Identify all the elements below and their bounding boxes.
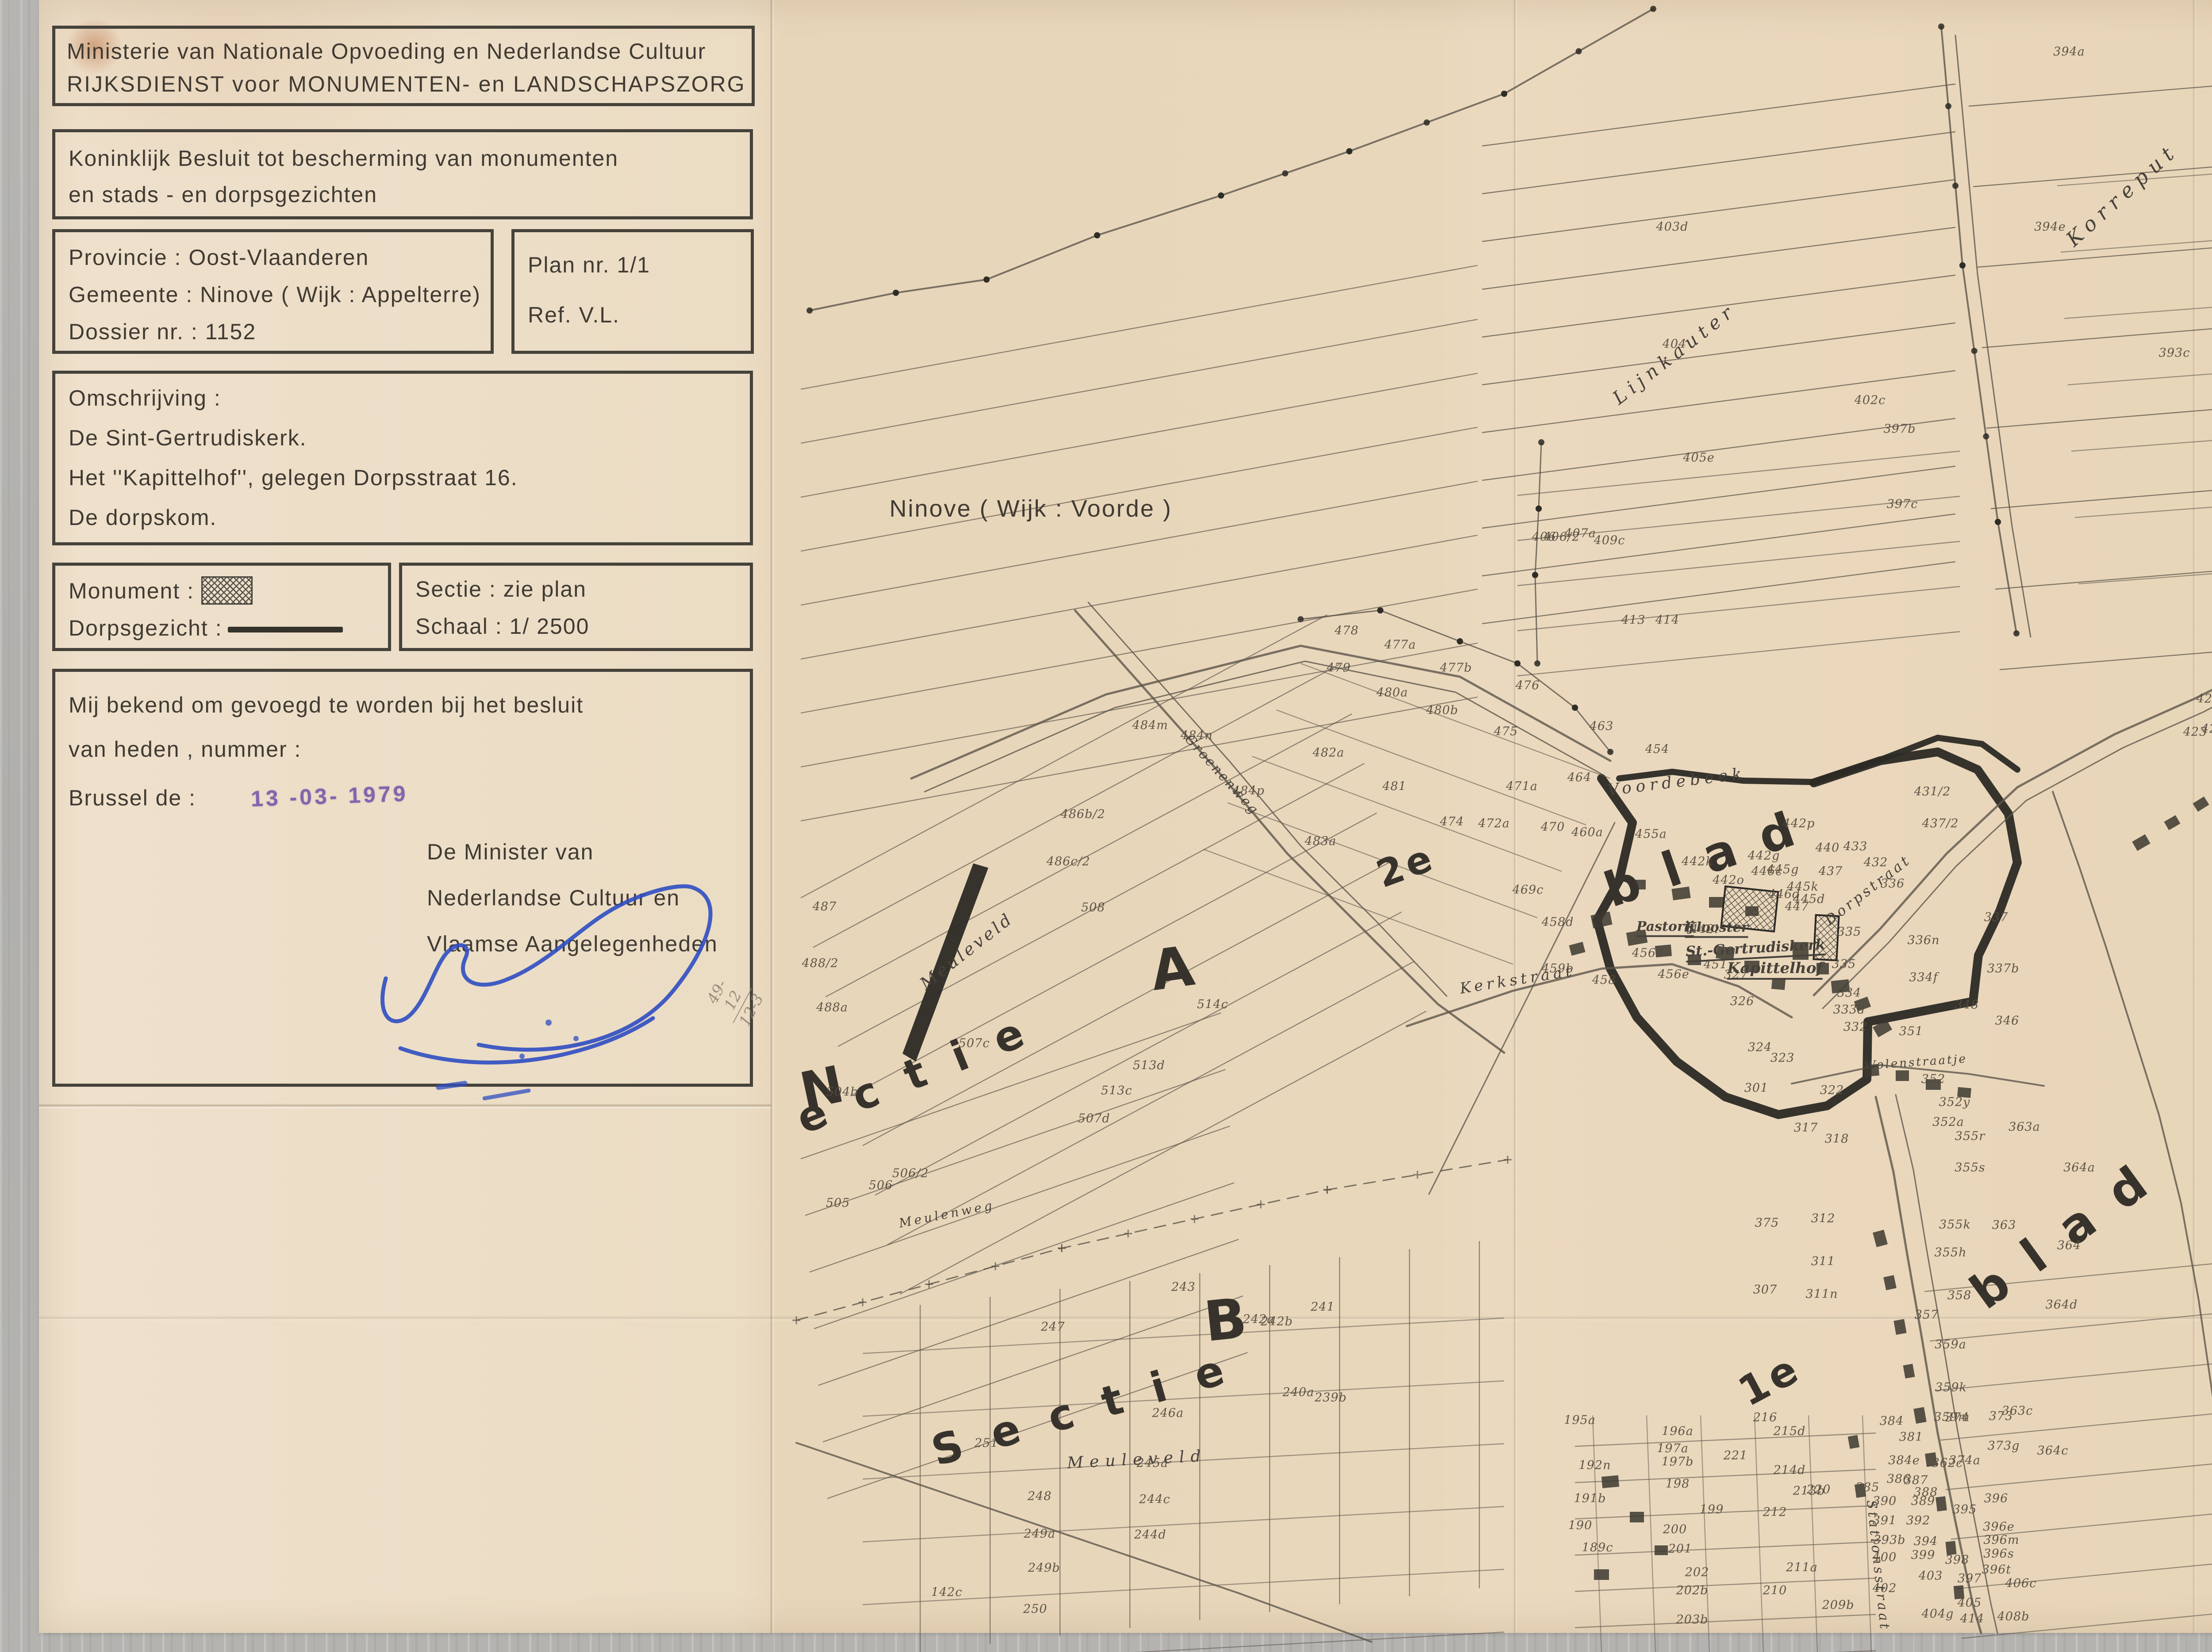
boundary-dot (1514, 660, 1521, 667)
parcel-number: 395 (1953, 1503, 1977, 1517)
parcel-number: 191b (1574, 1492, 1606, 1506)
parcel-number: 484p (1233, 784, 1265, 798)
parcel-boundary-line (1276, 710, 1586, 825)
boundary-dot (1094, 232, 1100, 238)
parcel-number: 476 (1516, 679, 1540, 693)
parcel-number: 324 (1748, 1041, 1772, 1054)
parcel-boundary-line (1575, 1542, 1876, 1555)
parcel-number: 397b (1884, 422, 1916, 436)
path-cross-mark (792, 1316, 800, 1324)
parcel-boundary-line (1982, 321, 2212, 348)
parcel-number: 414 (1655, 613, 1680, 627)
parcel-number: 355h (1935, 1246, 1967, 1260)
parcel-number: 348 (1955, 998, 1979, 1012)
parcel-number: 337 (1984, 911, 2008, 924)
parcel-number: 409c (1594, 534, 1625, 548)
parcel-number: 214d (1774, 1464, 1806, 1477)
parcel-boundary-line (1517, 541, 1960, 586)
parcel-number: 397 (1958, 1572, 1982, 1586)
boundary-dot (983, 276, 990, 283)
parcel-number: 364a (2063, 1161, 2095, 1175)
parcel-number: 442i (1690, 923, 1719, 936)
parcel-number: 472a (1478, 817, 1510, 831)
parcel-boundary-line (1482, 180, 1955, 241)
building-footprint (1771, 978, 1786, 990)
parcel-number: 249a (1024, 1527, 1056, 1541)
parcel-number: 486b/2 (1060, 808, 1105, 821)
parcel-number: 197a (1657, 1442, 1689, 1456)
parcel-number: 396s (1983, 1547, 2014, 1561)
parcel-number: 480b (1426, 704, 1459, 717)
parcel-number: 506 (869, 1179, 893, 1192)
parcel-number: 244d (1134, 1528, 1167, 1542)
parcel-number: 422 (2197, 692, 2212, 706)
parcel-number: 318 (1825, 1132, 1849, 1146)
building-footprint (1913, 1407, 1927, 1424)
parcel-number: 364 (2057, 1239, 2081, 1253)
parcel-number: 381 (1899, 1430, 1924, 1444)
parcel-number: 239b (1315, 1391, 1347, 1405)
parcel-number: 407a (1564, 527, 1596, 540)
parcel-number: 322 (1820, 1084, 1844, 1097)
boundary-dot (893, 290, 899, 296)
parcel-number: 240a (1283, 1386, 1314, 1399)
parcel-number: 403d (1656, 220, 1689, 234)
parcel-number: 364d (2046, 1298, 2078, 1312)
parcel-number: 247 (1041, 1320, 1065, 1334)
parcel-number: 399 (1911, 1549, 1935, 1562)
parcel-number: 195a (1564, 1414, 1596, 1427)
parcel-boundary-line (2071, 433, 2212, 451)
path-cross-mark (859, 1298, 867, 1306)
parcel-boundary-line (1517, 451, 1960, 495)
building-footprint (1594, 1569, 1609, 1580)
map-road-line (796, 1443, 1371, 1642)
boundary-dot (1995, 519, 2001, 525)
parcel-number: 359a (1935, 1338, 1966, 1352)
parcel-number: 458d (1542, 916, 1574, 929)
parcel-number: 311n (1806, 1288, 1838, 1301)
parcel-boundary-line (1203, 849, 1513, 964)
parcel-boundary-line (2068, 367, 2212, 385)
parcel-number: 216 (1753, 1411, 1778, 1425)
boundary-dot (1282, 170, 1288, 176)
boundary-dot (1576, 48, 1582, 54)
parcel-number: 403 (1919, 1569, 1943, 1583)
parcel-number: 203b (1676, 1613, 1709, 1627)
parcel-number: 442g (1748, 849, 1780, 863)
parcel-number: 393c (2159, 346, 2190, 360)
parcel-number: 221 (1724, 1449, 1748, 1463)
parcel-boundary-line (1935, 1355, 2212, 1391)
boundary-dot (1945, 103, 1951, 109)
parcel-number: 402 (1873, 1582, 1897, 1595)
parcel-number: 394e (2034, 220, 2066, 234)
parcel-number: 384 (1880, 1414, 1904, 1428)
parcel-boundary-line (1482, 132, 1955, 194)
boundary-dot (1424, 119, 1430, 126)
parcel-number: 358 (1947, 1289, 1972, 1303)
building-footprint (1903, 1364, 1915, 1378)
boundary-dot (1532, 572, 1538, 578)
parcel-number: 196a (1662, 1425, 1694, 1438)
parcel-number: 210 (1763, 1584, 1787, 1598)
parcel-boundary-line (801, 265, 1478, 389)
parcel-number: 359k (1935, 1381, 1967, 1395)
building-footprint (1709, 897, 1724, 908)
parcel-boundary-line (801, 427, 1478, 551)
parcel-number: 396m (1983, 1533, 2019, 1547)
parcel-number: 408b (1997, 1610, 2030, 1624)
parcel-boundary-line (2075, 500, 2212, 517)
parcel-number: 384e (1888, 1454, 1920, 1468)
parcel-boundary-line (887, 962, 1414, 1245)
parcel-number: 199 (1700, 1503, 1724, 1517)
parcel-number: 212 (1763, 1506, 1787, 1519)
parcel-number: 507d (1078, 1112, 1110, 1126)
parcel-number: 413 (1621, 613, 1646, 627)
parcel-boundary-line (1647, 1415, 1655, 1652)
boundary-dot (1952, 183, 1959, 189)
parcel-number: 404 (1663, 337, 1687, 351)
parcel-number: 487 (813, 900, 837, 914)
parcel-number: 335 (1832, 958, 1856, 971)
parcel-number: 478 (1335, 624, 1359, 638)
parcel-number: 400 (1873, 1551, 1897, 1564)
parcel-number: 241 (1311, 1300, 1335, 1314)
parcel-boundary-line (801, 535, 1478, 659)
parcel-number: 484n (1181, 729, 1213, 743)
parcel-number: 406c (2005, 1577, 2037, 1591)
parcel-boundary-line (1575, 1469, 1876, 1483)
parcel-number: 470 (1541, 820, 1565, 834)
parcel-boundary-line (1575, 1506, 1876, 1519)
boundary-dot (1536, 506, 1542, 512)
parcel-number: 209b (1822, 1598, 1855, 1612)
region-label: Ninove ( Wijk : Voorde ) (889, 495, 1172, 522)
parcel-number: 374 (1945, 1411, 1970, 1425)
parcel-number: 337b (1987, 962, 2020, 976)
path-cross-mark (1058, 1244, 1066, 1252)
parcel-number: 363 (1992, 1219, 2016, 1232)
parcel-number: 432 (1864, 856, 1888, 870)
parcel-boundary-line (1940, 1405, 2212, 1440)
parcel-boundary-line (1991, 482, 2212, 509)
building-footprint (1896, 1070, 1909, 1081)
parcel-number: 336 (1881, 877, 1905, 891)
parcel-boundary-line (863, 862, 1389, 1146)
parcel-number: 352 (1921, 1073, 1946, 1086)
parcel-number: 483a (1305, 835, 1336, 848)
parcel-number: 373g (1988, 1439, 2020, 1453)
parcel-number: 431/2 (1914, 785, 1951, 799)
parcel-boundary-line (810, 1126, 1230, 1272)
building-footprint (1569, 942, 1585, 955)
parcel-number: 301 (1744, 1081, 1769, 1095)
parcel-number: 200 (1663, 1523, 1687, 1537)
path-cross-mark (925, 1280, 933, 1288)
building-footprint (1601, 1475, 1619, 1488)
parcel-boundary-line (1755, 1415, 1763, 1652)
parcel-boundary-line (1482, 84, 1955, 146)
section-letter-sectie-a-letter: A (1147, 934, 1198, 1003)
parcel-number: 459b (1542, 962, 1574, 976)
building-footprint (1590, 912, 1612, 928)
parcel-number: 323 (1770, 1051, 1795, 1065)
parcel-number: 392 (1906, 1514, 1931, 1528)
parcel-number: 477b (1440, 661, 1472, 675)
parcel-number: 442k (1682, 855, 1713, 869)
parcel-number: 355r (1955, 1130, 1985, 1143)
building-footprint (2132, 834, 2150, 851)
parcel-number: 488a (816, 1001, 848, 1015)
parcel-boundary-line (801, 319, 1478, 443)
parcel-number: 484m (1132, 719, 1168, 732)
parcel-number: 336n (1908, 934, 1940, 947)
building-footprint (1893, 1319, 1906, 1335)
boundary-dot (1538, 439, 1544, 445)
parcel-number: 246a (1152, 1407, 1184, 1420)
parcel-number: 394 (1914, 1535, 1938, 1549)
parcel-number: 373 (1989, 1410, 2013, 1423)
parcel-number: 397c (1887, 498, 1918, 511)
parcel-number: 190 (1568, 1519, 1593, 1533)
parcel-number: 442o (1713, 874, 1744, 887)
parcel-number: 456d (1632, 947, 1664, 960)
parcel-number: 447 (1785, 900, 1809, 914)
parcel-number: 513d (1133, 1059, 1165, 1073)
parcel-boundary-line (863, 1506, 1504, 1542)
parcel-number: 244c (1139, 1493, 1171, 1506)
parcel-boundary-line (2000, 643, 2212, 670)
parcel-number: 458 (1592, 974, 1617, 987)
parcel-number: 488/2 (802, 957, 839, 970)
parcel-number: 192n (1579, 1459, 1611, 1472)
parcel-number: 355k (1939, 1218, 1971, 1232)
parcel-number: 506/2 (892, 1167, 929, 1181)
parcel-number: 311 (1811, 1255, 1836, 1269)
parcel-number: 249b (1028, 1561, 1060, 1575)
parcel-number: 508 (1081, 901, 1106, 915)
building-footprint (1655, 1545, 1668, 1555)
parcel-boundary-line (1575, 1433, 1876, 1446)
parcel-number: 201 (1668, 1542, 1693, 1556)
parcel-number: 327 (1724, 968, 1748, 982)
parcel-number: 456e (1658, 968, 1690, 981)
parcel-number: 486c/2 (1047, 855, 1091, 869)
parcel-number: 385 (1855, 1481, 1880, 1495)
parcel-number: 437/2 (1922, 817, 1959, 831)
map-road-line (810, 9, 1653, 310)
parcel-number: 351 (1899, 1025, 1924, 1039)
boundary-dot (1534, 660, 1540, 667)
parcel-number: 437 (1819, 865, 1843, 878)
parcel-boundary-line (1517, 632, 1960, 676)
parcel-number: 307 (1753, 1283, 1778, 1297)
parcel-boundary-line (1575, 1578, 1876, 1591)
parcel-number: 363a (2008, 1120, 2040, 1134)
parcel-number: 334 (1837, 986, 1862, 1000)
parcel-number: 250 (1023, 1602, 1048, 1616)
parcel-number: 442p (1783, 817, 1815, 831)
parcel-number: 355s (1955, 1161, 1985, 1175)
parcel-number: 357 (1915, 1308, 1939, 1322)
building-footprint (1873, 1230, 1888, 1247)
parcel-boundary-line (1482, 227, 1955, 289)
parcel-boundary-line (863, 1318, 1504, 1353)
parcel-boundary-line (1593, 1415, 1601, 1652)
parcel-number: 474 (1440, 815, 1464, 829)
parcel-number: 334f (1909, 971, 1938, 985)
boundary-dot (1377, 607, 1383, 613)
parcel-boundary-line (1946, 1454, 2212, 1490)
boundary-dot (1959, 262, 1966, 268)
parcel-number: 514c (1197, 998, 1229, 1012)
map-road-line (1088, 602, 1447, 996)
path-cross-mark (1504, 1156, 1512, 1164)
parcel-number: 505 (826, 1196, 850, 1210)
boundary-dot (1938, 23, 1944, 30)
boundary-dot (1983, 433, 1989, 440)
boundary-dot (1218, 192, 1224, 199)
parcel-number: 364c (2037, 1444, 2069, 1458)
parcel-boundary-line (1482, 514, 1955, 576)
parcel-boundary-line (1482, 562, 1955, 624)
parcel-number: 405 (1958, 1596, 1982, 1610)
parcel-number: 375 (1755, 1216, 1779, 1230)
building-footprint (1630, 1512, 1644, 1522)
path-cross-mark (1190, 1215, 1198, 1223)
parcel-number: 440 (1816, 841, 1840, 855)
parcel-boundary-line (863, 1632, 1504, 1652)
parcel-number: 202 (1685, 1566, 1709, 1579)
parcel-number: 389 (1911, 1495, 1935, 1508)
boundary-dot (2013, 630, 2020, 636)
parcel-number: 211a (1786, 1561, 1818, 1575)
boundary-dot (1971, 348, 1978, 354)
parcel-number: 479 (1327, 661, 1351, 675)
parcel-number: 346 (1995, 1014, 2020, 1028)
parcel-number: 215d (1774, 1425, 1806, 1438)
building-footprint (1883, 1275, 1897, 1290)
parcel-number: 477a (1384, 638, 1416, 652)
parcel-number: 404g (1922, 1607, 1954, 1621)
parcel-number: 396 (1984, 1492, 2008, 1506)
parcel-boundary-line (801, 373, 1478, 497)
map-road-line (1535, 442, 1541, 663)
parcel-boundary-line (1517, 586, 1960, 631)
parcel-number: 455a (1635, 828, 1667, 841)
parcel-number: 332 (1843, 1020, 1868, 1034)
path-cross-mark (1124, 1230, 1132, 1238)
building-footprint (2164, 815, 2181, 830)
parcel-number: 248 (1028, 1490, 1052, 1503)
parcel-number: 391 (1873, 1514, 1897, 1528)
parcel-number: 202b (1676, 1584, 1709, 1598)
parcel-number: 402c (1855, 394, 1886, 407)
parcel-number: 352y (1939, 1096, 1970, 1109)
parcel-boundary-line (1809, 1415, 1817, 1652)
parcel-boundary-line (1978, 241, 2212, 267)
parcel-number: 335 (1837, 925, 1862, 939)
parcel-number: 396t (1982, 1563, 2011, 1577)
parcel-number: 213b (1793, 1484, 1825, 1498)
boundary-dot (1607, 749, 1613, 755)
parcel-number: 507c (959, 1037, 990, 1050)
parcel-number: 475 (1494, 725, 1518, 739)
boundary-dot (1457, 638, 1463, 644)
parcel-boundary-line (1986, 402, 2212, 428)
parcel-number: 326 (1730, 995, 1755, 1008)
parcel-number: 469c (1513, 883, 1544, 897)
parcel-number: 245a (1137, 1457, 1168, 1470)
parcel-number: 464 (1567, 771, 1592, 785)
parcel-number: 481 (1382, 780, 1407, 793)
parcel-number: 396e (1983, 1520, 2015, 1534)
parcel-number: 390 (1873, 1495, 1897, 1508)
parcel-number: 317 (1794, 1121, 1818, 1135)
parcel-number: 374a (1949, 1454, 1981, 1468)
parcel-number: 198 (1666, 1477, 1690, 1491)
parcel-number: 312 (1811, 1212, 1836, 1226)
building-footprint (1848, 1435, 1860, 1449)
boundary-dot (806, 307, 813, 314)
parcel-number: 398 (1945, 1553, 1970, 1567)
path-cross-mark (1413, 1171, 1421, 1179)
boundary-dot (1346, 148, 1352, 154)
parcel-number: 454 (1645, 743, 1670, 756)
path-cross-mark (1323, 1186, 1331, 1194)
parcel-number: 251 (975, 1437, 999, 1450)
parcel-boundary-line (801, 643, 1478, 767)
parcel-number: 142c (931, 1586, 963, 1599)
parcel-number: 243 (1171, 1280, 1196, 1294)
map-road-line (911, 646, 1610, 778)
parcel-number: 433 (1843, 840, 1868, 854)
boundary-dot (1501, 91, 1507, 97)
parcel-number: 197b (1662, 1455, 1694, 1469)
boundary-dot (1650, 6, 1656, 12)
parcel-boundary-line (2064, 301, 2212, 318)
scanned-document: { "document": { "header": { "line1": "Mi… (0, 0, 2212, 1652)
parcel-number: 333d (1833, 1003, 1866, 1017)
parcel-number: 189c (1582, 1541, 1613, 1555)
parcel-number: 423 (2183, 725, 2208, 739)
parcel-number: 414 (1960, 1612, 1985, 1626)
parcel-number: 445g (1767, 863, 1799, 877)
parcel-number: 480a (1376, 686, 1408, 700)
parcel-boundary-line (814, 1183, 1234, 1329)
parcel-boundary-line (1575, 1614, 1876, 1628)
parcel-number: 463 (1590, 720, 1614, 733)
parcel-number: 394a (2053, 45, 2085, 59)
parcel-number: 471a (1506, 780, 1538, 793)
parcel-number: 405e (1683, 451, 1715, 465)
parcel-number: 513c (1101, 1084, 1133, 1098)
parcel-number: 504b (826, 1085, 859, 1099)
parcel-number: 242b (1261, 1315, 1293, 1329)
parcel-number: 482a (1313, 746, 1344, 760)
map-road-line (1955, 35, 2031, 637)
building-footprint (2193, 797, 2209, 812)
boundary-dot (1572, 705, 1578, 711)
parcel-number: 393b (1874, 1533, 1906, 1547)
path-cross-mark (1257, 1200, 1265, 1208)
parcel-boundary-line (1969, 80, 2212, 106)
parcel-number: 460a (1571, 826, 1603, 839)
parcel-number: 352a (1932, 1115, 1964, 1129)
